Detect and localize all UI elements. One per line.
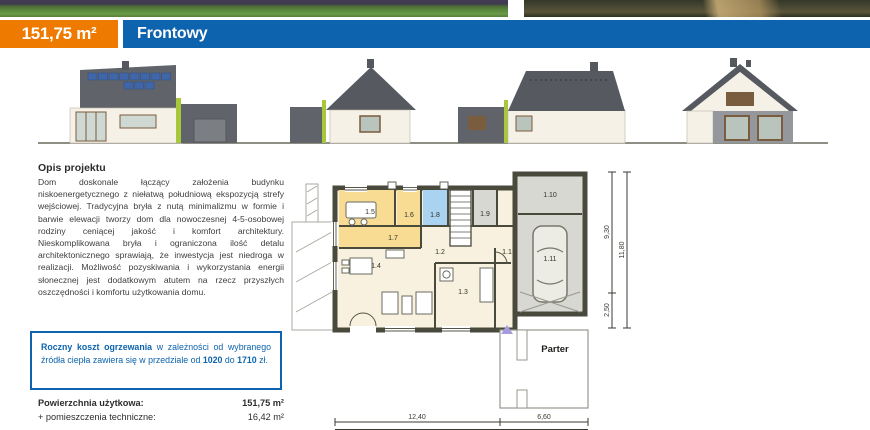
elevation-right [458, 62, 625, 143]
green-accent [322, 100, 326, 143]
area-badge: 151,75 m² [0, 20, 118, 48]
room-label: 1.2 [435, 249, 445, 256]
window [725, 116, 749, 140]
table-row: Powierzchnia użytkowa: 151,75 m² [38, 397, 284, 411]
area-label: Powierzchnia użytkowa: [38, 397, 144, 411]
window [120, 115, 156, 128]
driveway [500, 330, 588, 408]
chimney [122, 61, 129, 70]
room-label: 1.6 [404, 212, 414, 219]
window [360, 116, 380, 132]
dim-label: 12,40 [408, 414, 426, 421]
window [758, 116, 782, 140]
cost-text-between: do [222, 355, 237, 365]
room-label: 1.8 [430, 212, 440, 219]
cost-value-low: 1020 [203, 355, 223, 365]
pantry-area [397, 190, 421, 226]
cost-text-end: zł. [257, 355, 268, 365]
car [533, 226, 567, 302]
chimney [746, 60, 751, 67]
title-bar: 151,75 m² Frontowy [0, 20, 870, 48]
elevation-front [70, 61, 237, 143]
chimney [367, 59, 374, 68]
area-label: + pomieszczenia techniczne: [38, 411, 156, 425]
window [726, 92, 754, 106]
green-accent [176, 98, 181, 143]
elevations-drawing [30, 58, 840, 158]
table-row: + pomieszczenia techniczne: 16,42 m² [38, 411, 284, 425]
floor-plan: 1.1 1.2 1.3 1.4 1.5 1.6 1.7 1.8 1.9 1.10… [290, 162, 640, 430]
room-label: 1.9 [480, 211, 490, 218]
stairs [450, 190, 471, 246]
window [76, 112, 106, 141]
area-value: 151,75 m² [242, 397, 284, 411]
elevation-left [290, 59, 416, 143]
garden-photo [0, 0, 508, 17]
page-title: Frontowy [123, 20, 870, 48]
dim-label: 9,30 [604, 225, 611, 239]
kitchen-annex [339, 226, 421, 248]
room-label: 1.11 [543, 256, 556, 263]
dim-label: 2,50 [604, 303, 611, 317]
dim-label: 11,80 [619, 241, 626, 258]
description-body: Dom doskonale łączący założenia budynku … [38, 176, 284, 298]
terrace [292, 184, 336, 330]
elevation-rear [682, 58, 798, 143]
room-label: 1.3 [458, 289, 468, 296]
house-photo [524, 0, 870, 17]
cost-value-high: 1710 [237, 355, 257, 365]
chimney [590, 62, 598, 72]
chimney [730, 58, 737, 67]
garage-door [194, 119, 226, 142]
room-label: 1.1 [502, 249, 512, 256]
roof [508, 71, 625, 111]
window [468, 116, 486, 130]
window [516, 116, 532, 131]
description-heading: Opis projektu [38, 162, 284, 174]
floor-label: Parter [541, 344, 569, 355]
dim-label: 6,60 [537, 414, 551, 421]
cost-lead: Roczny koszt ogrzewania [41, 342, 152, 352]
roof [326, 67, 416, 110]
room-label: 1.5 [365, 209, 375, 216]
catalog-page: 151,75 m² Frontowy [0, 0, 870, 430]
tech-room-area [473, 190, 497, 226]
room-label: 1.7 [388, 235, 398, 242]
green-accent [504, 100, 508, 143]
areas-table: Powierzchnia użytkowa: 151,75 m² + pomie… [38, 397, 284, 424]
room-label: 1.10 [543, 192, 557, 199]
room-label: 1.4 [371, 263, 381, 270]
area-value: 16,42 m² [248, 411, 284, 425]
heating-cost-box: Roczny koszt ogrzewania w zależności od … [30, 331, 282, 390]
bathroom-area [423, 190, 448, 226]
